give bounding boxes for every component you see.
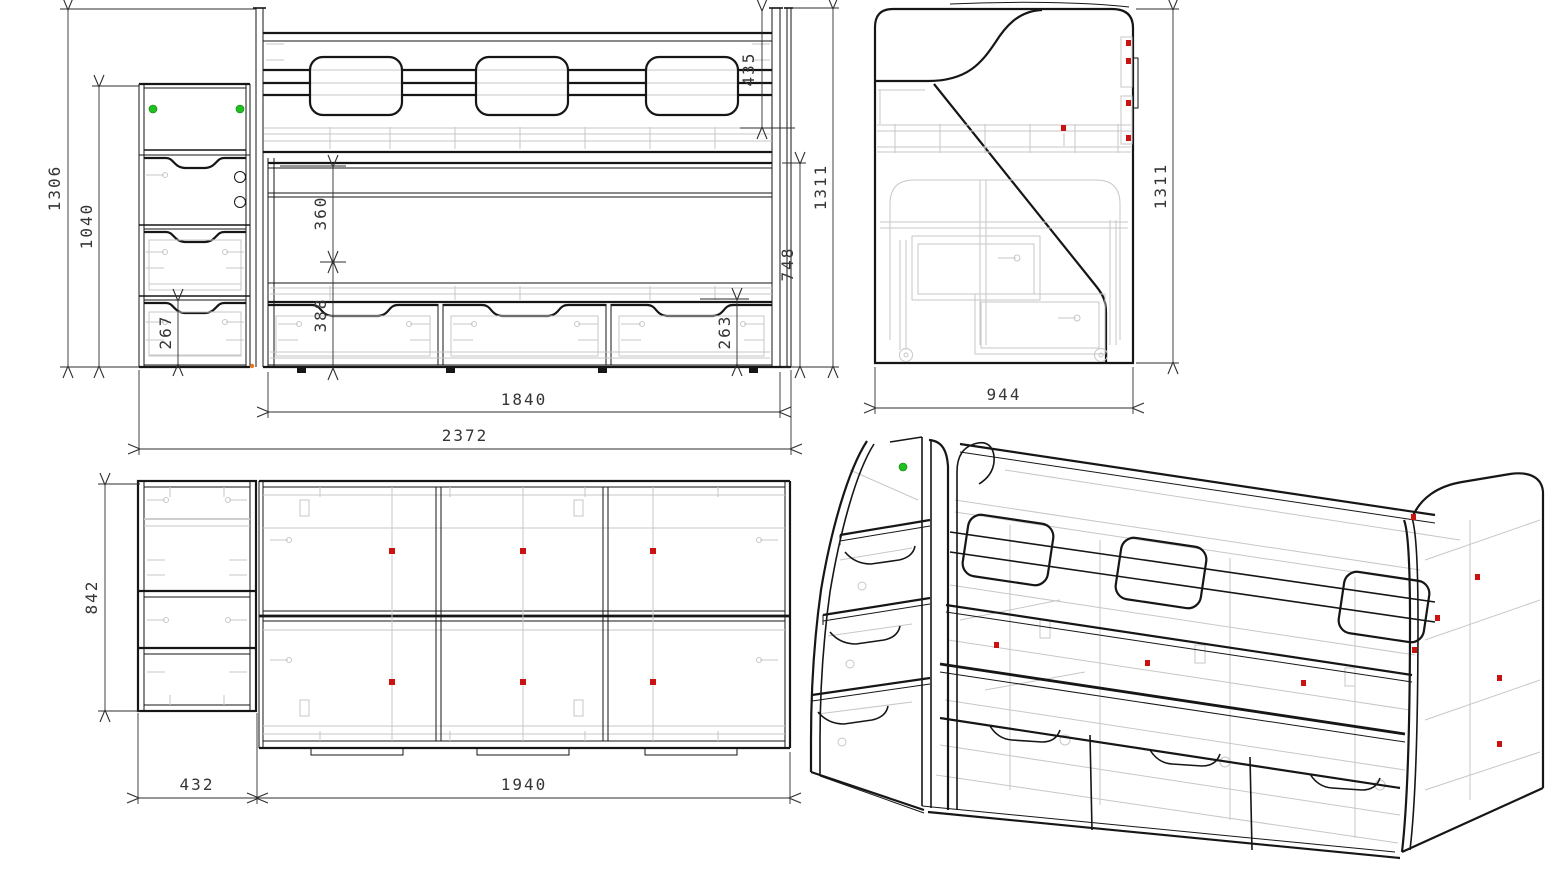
- iso-bed-body: [922, 440, 1543, 858]
- cad-canvas: 1306 1040 267 360 388 263 435 748 1311: [0, 0, 1549, 872]
- iso-guard-window-2: [1114, 536, 1208, 610]
- dim-plan-depth: 842: [82, 580, 101, 615]
- guard-window-3: [646, 57, 738, 115]
- shelf-hole: [235, 197, 246, 208]
- plan-bed-hidden: [263, 487, 785, 741]
- dim-front-bed-height: 1311: [811, 164, 830, 211]
- dim-front-lower-height: 748: [778, 247, 797, 282]
- bed-drawer-1-handle: [268, 305, 438, 316]
- dim-front-bed-length: 1840: [501, 390, 548, 409]
- iso-hidden-detail: [818, 470, 1540, 843]
- stairs-drawer-1-handle: [144, 158, 246, 168]
- cam-marker-green: [236, 105, 244, 113]
- shelf-hole: [235, 172, 246, 183]
- side-stair-stringer: [934, 84, 1106, 363]
- dim-side-height: 1311: [1151, 163, 1170, 210]
- plan-bed: [259, 481, 790, 755]
- front-bed-body: [253, 8, 793, 373]
- cam-marker-green: [149, 105, 157, 113]
- dim-front-guard-rail-height: 435: [739, 52, 758, 87]
- dim-plan-stairs-width: 432: [180, 775, 215, 794]
- bed-drawer-3-handle: [611, 305, 772, 316]
- iso-stairs-handle: [830, 626, 900, 644]
- guard-window-2: [476, 57, 568, 115]
- lower-base-hidden: [270, 286, 772, 300]
- plan-stairs: [138, 481, 256, 711]
- isometric-view: [811, 437, 1543, 858]
- front-view: 1306 1040 267 360 388 263 435 748 1311: [45, 8, 839, 455]
- dim-front-rail-gap: 360: [311, 196, 330, 231]
- dim-front-overall-height: 1306: [45, 165, 64, 212]
- bed-drawer-2-handle: [443, 305, 606, 316]
- dowel-marker-orange: [250, 364, 254, 368]
- upper-base-hidden: [264, 44, 772, 149]
- bed-feet: [297, 368, 758, 373]
- guard-window-1: [310, 57, 402, 115]
- side-outline: [875, 9, 1133, 363]
- dim-front-stairs-height: 1040: [77, 203, 96, 250]
- plan-view: 842 432 1940: [82, 481, 790, 804]
- side-headboard-swoosh: [876, 10, 1042, 81]
- iso-stairs-handle: [845, 546, 915, 564]
- rails-hidden: [310, 70, 738, 95]
- side-hidden-detail: [877, 37, 1132, 362]
- drawing-sheet: 1306 1040 267 360 388 263 435 748 1311: [0, 0, 1549, 872]
- dim-front-stairs-drawer-height: 267: [156, 315, 175, 350]
- iso-guard-window-1: [961, 513, 1055, 587]
- dim-front-overall-length: 2372: [442, 426, 489, 445]
- dim-side-depth: 944: [987, 385, 1022, 404]
- dim-front-drawer-section: 388: [311, 298, 330, 333]
- iso-cam-marker-green: [899, 463, 907, 471]
- side-view: 1311 944: [875, 2, 1179, 414]
- iso-stairs: [811, 437, 931, 813]
- drawer-hidden-detail: [270, 316, 770, 358]
- dim-plan-bed-length: 1940: [501, 775, 548, 794]
- iso-stairs-handle: [818, 706, 888, 724]
- dim-front-drawer-front: 263: [715, 315, 734, 350]
- iso-end-panel: [1402, 520, 1410, 852]
